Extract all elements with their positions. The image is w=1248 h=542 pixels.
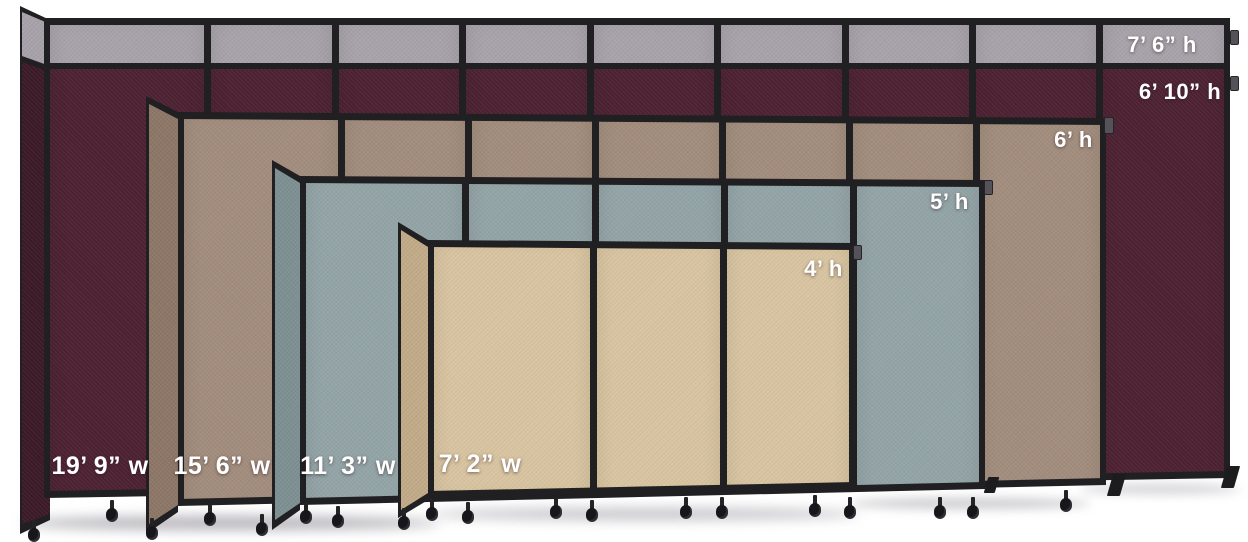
caster-wheel — [202, 504, 218, 528]
divider-4ft-side-panel — [398, 220, 428, 524]
fabric-panel — [597, 238, 719, 500]
height-label-5ft: 5’ h — [902, 190, 997, 214]
divider-5ft-side-panel — [272, 158, 300, 540]
width-label-15ft6: 15’ 6” w — [170, 454, 274, 478]
room-divider-size-comparison: 7’ 6” h 6’ 10” h 6’ h 5’ h 4’ h 19’ 9” w… — [0, 0, 1248, 542]
caster-wheel — [144, 518, 160, 542]
caster-wheel — [965, 497, 981, 521]
caster-wheel — [104, 500, 120, 524]
caster-wheel — [807, 495, 823, 519]
caster-wheel — [714, 497, 730, 521]
caster-wheel — [584, 500, 600, 524]
fabric-panel — [857, 172, 979, 512]
width-label-11ft3: 11’ 3” w — [296, 454, 400, 478]
height-label-6ft10: 6’ 10” h — [1115, 80, 1245, 104]
floor-shadow — [430, 508, 860, 520]
height-label-7ft6: 7’ 6” h — [1098, 33, 1226, 57]
caster-wheel — [842, 497, 858, 521]
caster-wheel — [1058, 490, 1074, 514]
caster-wheel — [932, 497, 948, 521]
caster-wheel — [424, 499, 440, 523]
caster-wheel — [396, 508, 412, 532]
caster-wheel — [678, 497, 694, 521]
width-label-7ft2: 7’ 2” w — [430, 452, 530, 476]
caster-wheel — [548, 497, 564, 521]
side-panel-fabric — [272, 158, 300, 540]
wall-bracket — [1230, 30, 1239, 45]
caster-wheel — [460, 502, 476, 526]
width-label-19ft9: 19’ 9” w — [48, 454, 152, 478]
side-panel-fabric — [398, 220, 428, 524]
floor-shadow — [20, 516, 440, 530]
floor-shadow — [1080, 484, 1240, 494]
height-label-6ft: 6’ h — [1026, 128, 1121, 152]
caster-wheel — [330, 506, 346, 530]
caster-wheel — [26, 520, 42, 542]
fabric-panel — [980, 110, 1100, 512]
height-label-4ft: 4’ h — [776, 257, 871, 281]
caster-wheel — [298, 502, 314, 526]
caster-wheel — [254, 514, 270, 538]
